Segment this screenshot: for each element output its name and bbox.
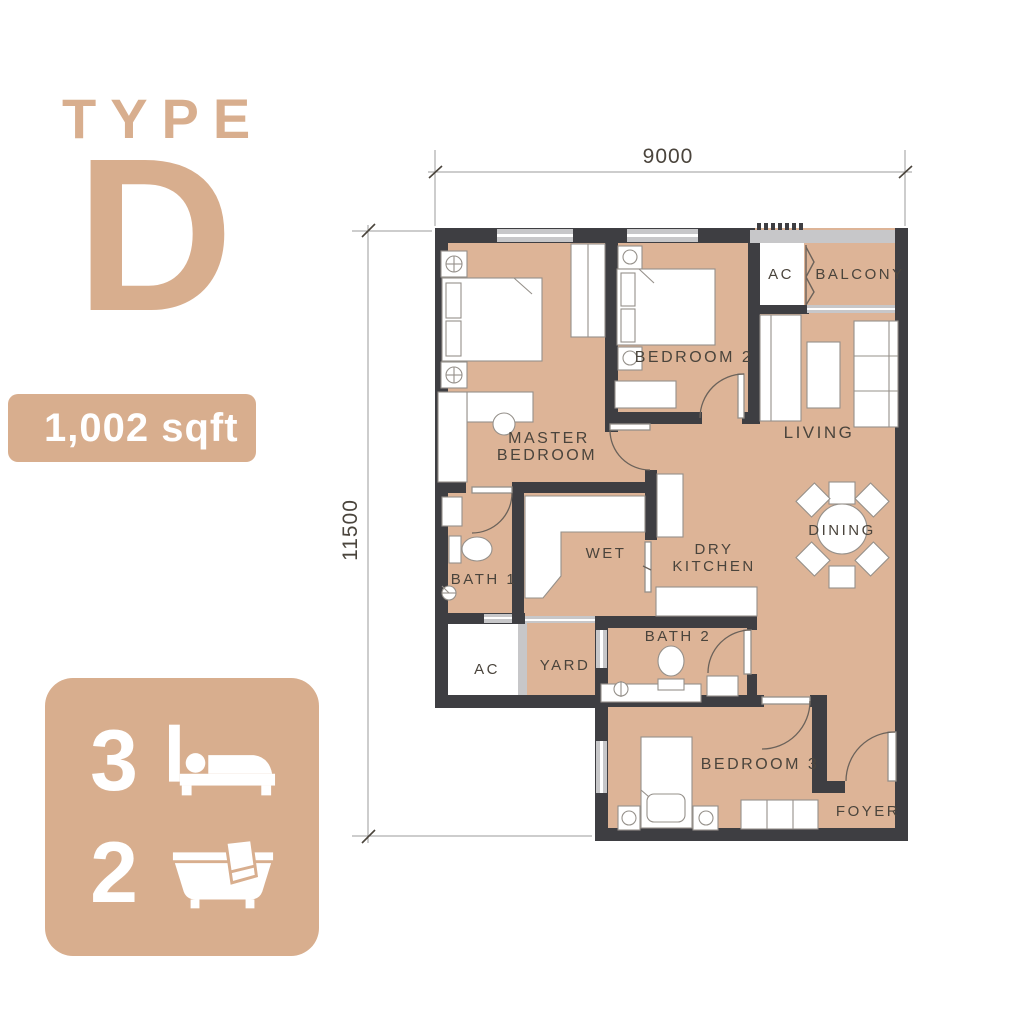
bath1-door-leaf [472, 487, 512, 493]
room-label-dry-line2: KITCHEN [672, 558, 755, 575]
floorplan-page: TYPE D 1,002 sqft 3 2 [0, 0, 1024, 1024]
room-label-master-line2: BEDROOM [497, 447, 597, 464]
dimension-top-value: 9000 [643, 145, 694, 168]
dimension-left-value: 11500 [339, 499, 362, 561]
bath2-door-leaf [744, 630, 751, 674]
room-label-bedroom3: BEDROOM 3 [701, 756, 820, 773]
room-label-dining: DINING [808, 522, 876, 539]
room-label-master-line1: MASTER [508, 430, 590, 447]
bedroom3-door-leaf [762, 697, 810, 704]
entrance-door-leaf [888, 732, 896, 781]
room-label-living: LIVING [784, 423, 855, 442]
room-label-bedroom2: BEDROOM 2 [635, 349, 754, 366]
room-label-foyer: FOYER [836, 803, 900, 820]
room-label-ac-bottom: AC [474, 661, 500, 678]
room-label-ac-top: AC [768, 266, 794, 283]
bedroom2-door-leaf [738, 374, 744, 418]
ac-room-bottom-floor [448, 624, 518, 695]
room-label-dry-line1: DRY [695, 541, 734, 558]
room-label-wet: WET [586, 545, 627, 562]
floor-plan: 9000 11500 [0, 0, 1024, 1024]
room-label-bath1: BATH 1 [451, 571, 517, 588]
room-label-bath2: BATH 2 [645, 628, 711, 645]
room-label-yard: YARD [540, 657, 591, 674]
balcony-parapet [750, 223, 908, 243]
room-label-balcony: BALCONY [815, 266, 904, 283]
master-door-leaf [610, 424, 650, 430]
